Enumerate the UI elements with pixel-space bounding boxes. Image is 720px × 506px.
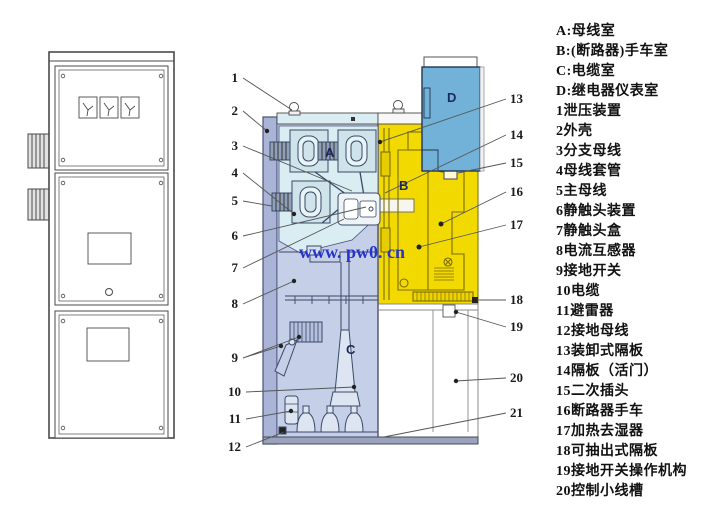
callout-7: 7 <box>232 260 239 275</box>
legend-item-11: 11避雷器 <box>556 302 720 322</box>
cabinet-front-view <box>20 40 200 456</box>
relay-instrument-box <box>422 57 484 171</box>
legend-item-4: 4母线套管 <box>556 162 720 182</box>
cable-terminations <box>297 406 363 432</box>
legend-item-2: 2外壳 <box>556 122 720 142</box>
callout-8: 8 <box>232 296 239 311</box>
callout-1: 1 <box>232 70 239 85</box>
legend-item-c: C:电缆室 <box>556 62 720 82</box>
door-window <box>88 233 131 264</box>
cabinet-base <box>263 437 478 444</box>
callout-13: 13 <box>510 91 524 106</box>
callout-20: 20 <box>510 370 523 385</box>
shutter-plate <box>381 152 390 176</box>
compartment-label-b: B <box>399 178 408 193</box>
callout-18: 18 <box>510 292 524 307</box>
callout-9: 9 <box>232 350 239 365</box>
compartment-label-d: D <box>447 90 456 105</box>
callout-12: 12 <box>228 439 241 454</box>
cabinet-door-bottom <box>55 311 168 438</box>
callout-10: 10 <box>228 384 241 399</box>
cabinet-side-hinge-bottom <box>28 189 49 220</box>
legend-item-19: 19接地开关操作机构 <box>556 462 720 482</box>
cabinet-section-view: www. pw0. cn <box>210 46 540 466</box>
legend-item-13: 13装卸式隔板 <box>556 342 720 362</box>
legend-item-3: 3分支母线 <box>556 142 720 162</box>
legend-item-10: 10电缆 <box>556 282 720 302</box>
cabinet-side-hinge-top <box>28 134 49 168</box>
lower-right-compartment <box>378 304 478 437</box>
callout-2: 2 <box>232 103 239 118</box>
legend-item-14: 14隔板（活门） <box>556 362 720 382</box>
figure-canvas: www. pw0. cn <box>0 0 720 506</box>
door-window <box>87 328 129 361</box>
callout-19: 19 <box>510 319 524 334</box>
cabinet-door-middle <box>55 173 168 305</box>
callout-21: 21 <box>510 405 523 420</box>
callout-16: 16 <box>510 184 524 199</box>
legend-item-20: 20控制小线槽 <box>556 482 720 502</box>
panel-meters <box>79 97 139 118</box>
callout-15: 15 <box>510 155 524 170</box>
cabinet-door-top <box>55 66 168 170</box>
legend-item-7: 7静触头盒 <box>556 222 720 242</box>
callout-11: 11 <box>229 411 241 426</box>
legend-item-15: 15二次插头 <box>556 382 720 402</box>
watermark-text: www. pw0. cn <box>299 242 405 262</box>
legend-item-18: 18可抽出式隔板 <box>556 442 720 462</box>
legend-item-a: A:母线室 <box>556 22 720 42</box>
legend-item-1: 1泄压装置 <box>556 102 720 122</box>
legend: A:母线室 B:(断路器)手车室 C:电缆室 D:继电器仪表室 1泄压装置 2外… <box>556 22 720 502</box>
compartment-label-a: A <box>325 145 335 160</box>
legend-item-6: 6静触头装置 <box>556 202 720 222</box>
callout-3: 3 <box>232 138 239 153</box>
callout-14: 14 <box>510 127 524 142</box>
legend-item-12: 12接地母线 <box>556 322 720 342</box>
legend-item-b: B:(断路器)手车室 <box>556 42 720 62</box>
legend-item-5: 5主母线 <box>556 182 720 202</box>
callout-17: 17 <box>510 217 524 232</box>
earthing-switch-operator <box>443 305 455 317</box>
legend-item-9: 9接地开关 <box>556 262 720 282</box>
withdrawable-partition <box>413 292 473 301</box>
legend-item-8: 8电流互感器 <box>556 242 720 262</box>
legend-item-d: D:继电器仪表室 <box>556 82 720 102</box>
callout-4: 4 <box>232 165 239 180</box>
compartment-label-c: C <box>346 342 356 357</box>
callout-5: 5 <box>232 193 239 208</box>
legend-item-16: 16断路器手车 <box>556 402 720 422</box>
callout-6: 6 <box>232 228 239 243</box>
legend-item-17: 17加热去湿器 <box>556 422 720 442</box>
